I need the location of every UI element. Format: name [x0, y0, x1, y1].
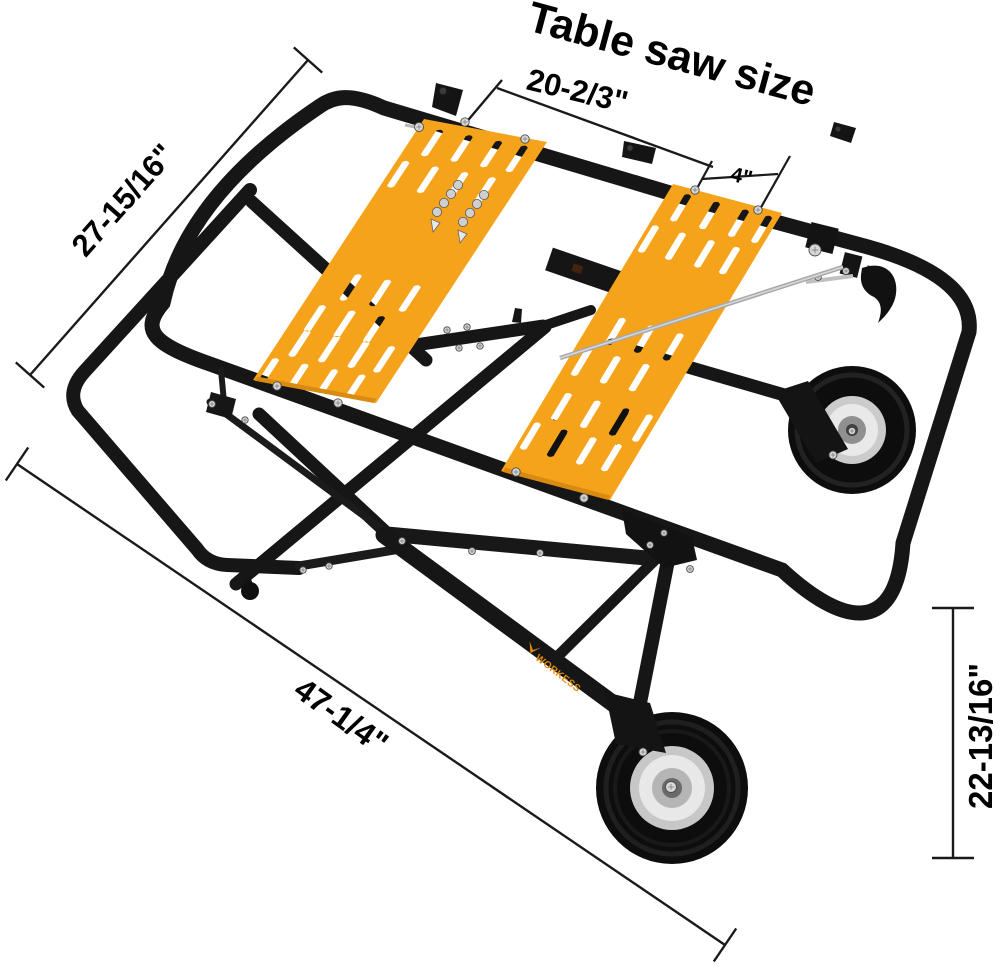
svg-text:22-13/16": 22-13/16" [962, 663, 999, 809]
